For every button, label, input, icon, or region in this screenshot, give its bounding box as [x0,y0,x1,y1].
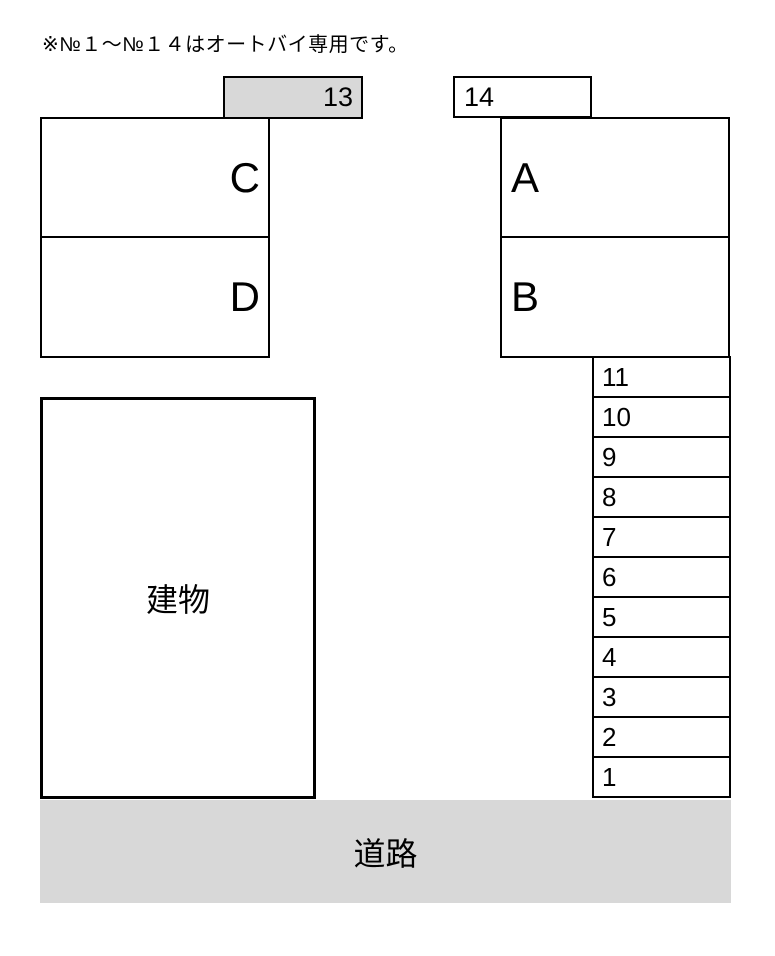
parking-spot-14: 14 [453,76,592,118]
parking-spot-d-label: D [230,273,260,321]
parking-spot-7: 7 [592,516,731,558]
parking-spot-6-label: 6 [602,562,616,593]
parking-spot-b: B [500,236,730,358]
motorcycle-spot-column: 11 10 9 8 7 6 5 4 3 2 1 [592,356,731,798]
parking-spot-a: A [500,117,730,238]
parking-spot-c-label: C [230,154,260,202]
road-area: 道路 [40,800,731,903]
parking-spot-4-label: 4 [602,642,616,673]
parking-spot-3-label: 3 [602,682,616,713]
parking-spot-1: 1 [592,756,731,798]
parking-spot-4: 4 [592,636,731,678]
parking-spot-b-label: B [511,273,539,321]
parking-spot-7-label: 7 [602,522,616,553]
road-label: 道路 [353,829,417,875]
parking-spot-a-label: A [511,154,539,202]
parking-spot-c: C [40,117,270,238]
parking-spot-9: 9 [592,436,731,478]
parking-spot-5-label: 5 [602,602,616,633]
parking-spot-3: 3 [592,676,731,718]
parking-spot-10: 10 [592,396,731,438]
parking-spot-d: D [40,236,270,358]
building-label: 建物 [146,575,210,621]
parking-spot-13: 13 [223,76,363,119]
parking-spot-9-label: 9 [602,442,616,473]
parking-spot-5: 5 [592,596,731,638]
parking-spot-6: 6 [592,556,731,598]
parking-spot-11-label: 11 [602,362,629,393]
parking-spot-10-label: 10 [602,402,631,433]
parking-spot-1-label: 1 [602,762,616,793]
parking-lot-diagram: ※№１～№１４はオートバイ専用です。 13 14 C D A B 11 10 9… [0,0,775,956]
parking-spot-11: 11 [592,356,731,398]
parking-spot-2-label: 2 [602,722,616,753]
motorcycle-note: ※№１～№１４はオートバイ専用です。 [42,28,409,57]
parking-spot-14-label: 14 [464,82,494,113]
parking-spot-8-label: 8 [602,482,616,513]
parking-spot-13-label: 13 [323,82,353,113]
building-area: 建物 [40,397,316,799]
parking-spot-2: 2 [592,716,731,758]
parking-spot-8: 8 [592,476,731,518]
